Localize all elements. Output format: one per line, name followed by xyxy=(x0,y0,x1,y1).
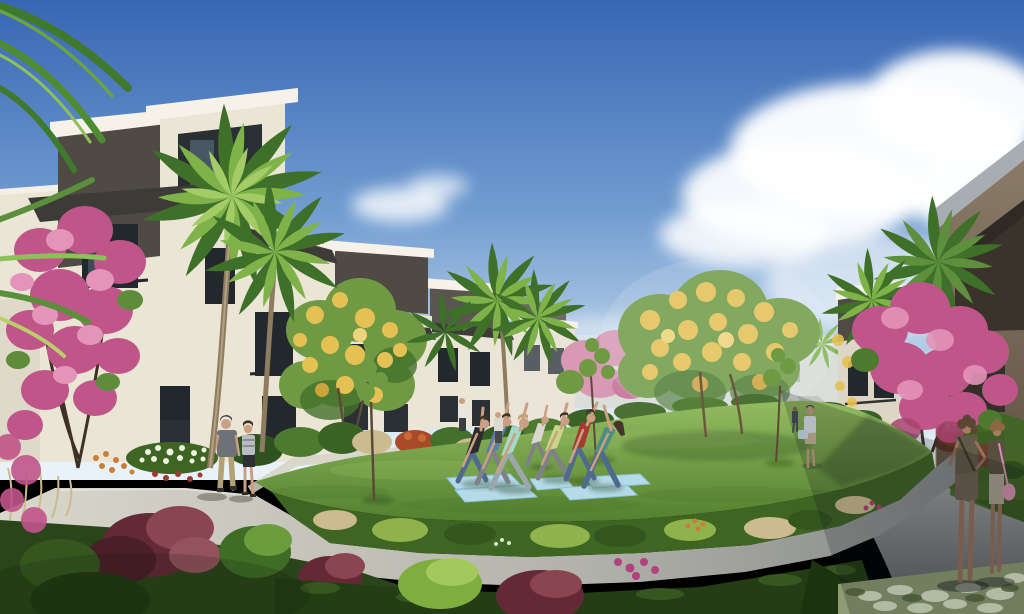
scene-canvas xyxy=(0,0,1024,614)
courtyard-rendering xyxy=(0,0,1024,614)
